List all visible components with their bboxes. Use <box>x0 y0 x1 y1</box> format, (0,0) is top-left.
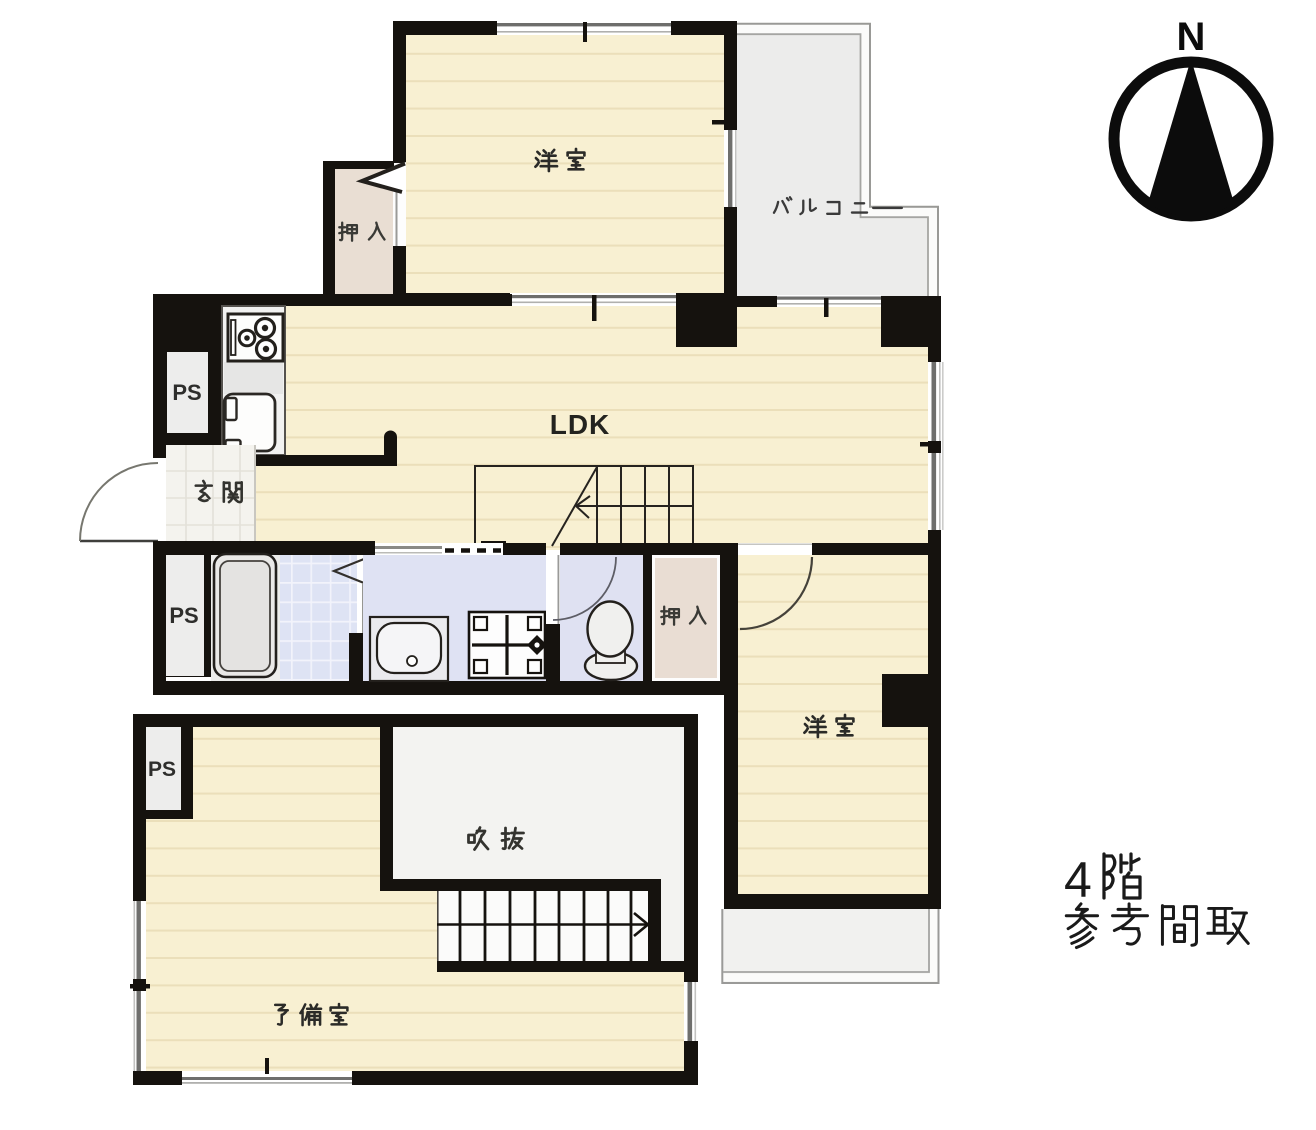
svg-text:PS: PS <box>148 758 176 781</box>
svg-text:PS: PS <box>169 603 198 628</box>
svg-text:4: 4 <box>1064 852 1092 908</box>
svg-text:LDK: LDK <box>550 409 611 440</box>
svg-text:N: N <box>1177 15 1206 59</box>
svg-text:PS: PS <box>172 380 201 405</box>
